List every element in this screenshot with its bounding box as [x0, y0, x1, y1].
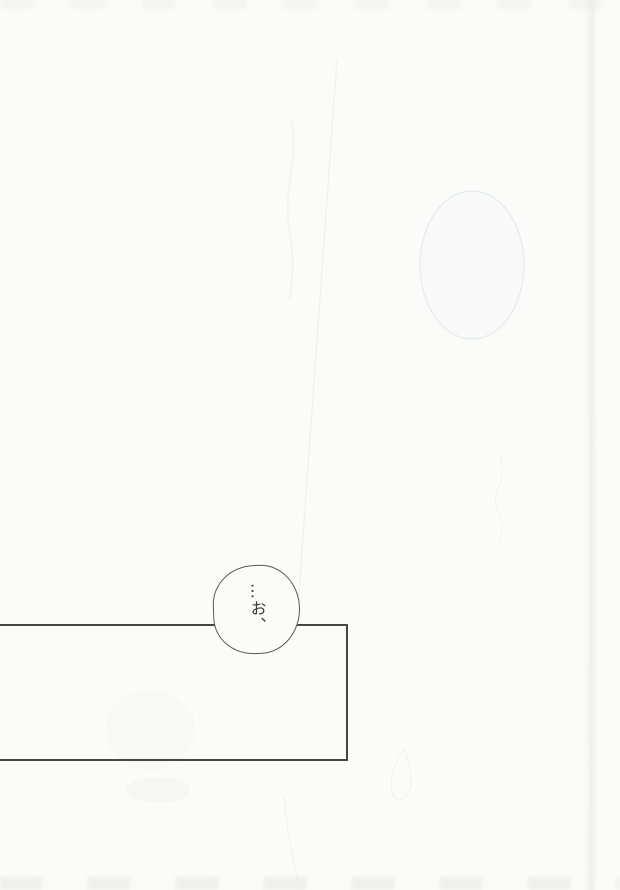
- paper-fold-band: [584, 0, 598, 890]
- showthrough-faint-marks-upper: [288, 120, 294, 300]
- scan-edge-shading-top: [0, 0, 620, 9]
- showthrough-ribbon-loop: [391, 750, 411, 800]
- showthrough-crease-line: [297, 58, 337, 622]
- scan-edge-shading-bottom: [0, 877, 620, 890]
- showthrough-squiggle-mid-right: [495, 455, 502, 543]
- showthrough-line-below-panel: [284, 796, 301, 890]
- scan-hairline-right: [590, 0, 593, 890]
- scanned-manga-page: …お、: [0, 0, 620, 890]
- manga-panel-frame: [0, 624, 348, 761]
- showthrough-smudge-bottom-left: [126, 777, 190, 803]
- speech-bubble-text: …お、: [248, 583, 266, 634]
- showthrough-bubble-circle: [420, 191, 524, 339]
